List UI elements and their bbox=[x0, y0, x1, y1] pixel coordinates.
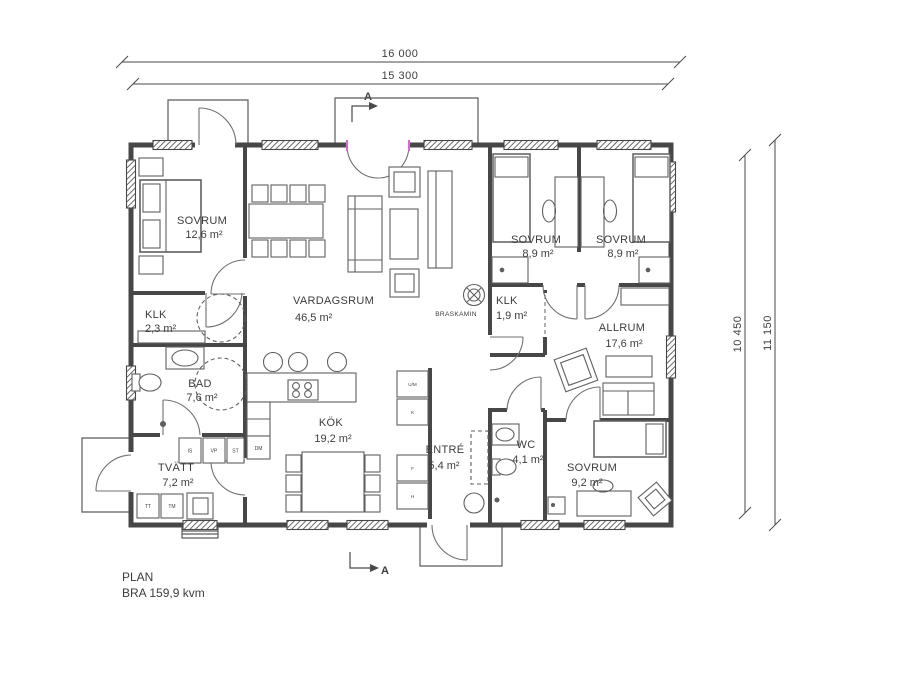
room-label-wc: WC bbox=[517, 439, 536, 451]
room-area-sovrum3: 8,9 m² bbox=[607, 248, 639, 260]
appliance-label-is: IS bbox=[188, 449, 193, 455]
dim-11150: 11 150 bbox=[762, 315, 774, 351]
dimension-right-inner: 10 450 bbox=[732, 149, 751, 519]
appliance-label-f: F bbox=[411, 466, 414, 471]
room-label-tvatt: TVÄTT bbox=[158, 462, 194, 474]
appliance-label-vp: VP bbox=[211, 449, 218, 455]
room-area-klk2: 1,9 m² bbox=[496, 310, 528, 322]
room-label-klk2: KLK bbox=[496, 295, 518, 307]
room-label-sovrum4: SOVRUM bbox=[567, 462, 617, 474]
plan-footer: PLAN BRA 159,9 kvm bbox=[122, 570, 205, 600]
room-label-klk1: KLK bbox=[145, 309, 167, 321]
room-label-sovrum2: SOVRUM bbox=[511, 234, 561, 246]
room-label-sovrum3: SOVRUM bbox=[596, 234, 646, 246]
room-area-bad: 7,6 m² bbox=[186, 392, 218, 404]
dimension-right-outer: 11 150 bbox=[762, 134, 781, 531]
room-label-sovrum1: SOVRUM bbox=[177, 215, 227, 227]
room-label-vardagsrum: VARDAGSRUM bbox=[293, 295, 374, 307]
appliance-label-h: H bbox=[411, 494, 414, 499]
room-area-sovrum4: 9,2 m² bbox=[571, 477, 603, 489]
room-area-kok: 19,2 m² bbox=[314, 433, 352, 445]
section-marker-top: A bbox=[352, 91, 378, 122]
dimension-top-outer: 16 000 bbox=[116, 48, 686, 68]
room-area-sovrum1: 12,6 m² bbox=[185, 229, 223, 241]
room-label-kok: KÖK bbox=[319, 417, 343, 429]
section-label-top: A bbox=[364, 91, 372, 103]
floorplan-drawing: 16 000 15 300 10 450 11 150 A A bbox=[0, 0, 900, 675]
section-marker-bottom: A bbox=[350, 552, 389, 577]
section-label-bottom: A bbox=[381, 565, 389, 577]
room-label-bad: BAD bbox=[188, 378, 212, 390]
room-area-vardagsrum: 46,5 m² bbox=[295, 312, 333, 324]
appliance-label-dm: DM bbox=[255, 446, 263, 452]
room-area-tvatt: 7,2 m² bbox=[162, 477, 194, 489]
plan-title: PLAN bbox=[122, 570, 153, 584]
dimension-top-inner: 15 300 bbox=[127, 70, 674, 90]
dim-10450: 10 450 bbox=[732, 316, 744, 353]
appliance-label-tm: TM bbox=[168, 504, 175, 510]
appliance-label-tt: TT bbox=[145, 504, 151, 510]
dim-16000: 16 000 bbox=[382, 48, 419, 60]
fixture-label-braskamin: BRASKAMIN bbox=[435, 311, 477, 318]
room-area-wc: 4,1 m² bbox=[512, 454, 544, 466]
room-label-allrum: ALLRUM bbox=[599, 322, 645, 334]
door-porch-topleft bbox=[199, 108, 236, 145]
appliance-label-um: U/M bbox=[408, 382, 417, 387]
door-entre-exterior bbox=[432, 525, 467, 560]
appliance-label-st: ST bbox=[232, 449, 238, 455]
plan-area-total: BRA 159,9 kvm bbox=[122, 586, 205, 600]
dim-15300: 15 300 bbox=[382, 70, 419, 82]
room-label-entre: ENTRÉ bbox=[426, 443, 465, 456]
room-area-entre: 5,4 m² bbox=[428, 460, 460, 472]
room-area-klk1: 2,3 m² bbox=[145, 323, 177, 335]
room-area-sovrum2: 8,9 m² bbox=[522, 248, 554, 260]
room-area-allrum: 17,6 m² bbox=[605, 338, 643, 350]
floorplan-page: 16 000 15 300 10 450 11 150 A A bbox=[0, 0, 900, 675]
